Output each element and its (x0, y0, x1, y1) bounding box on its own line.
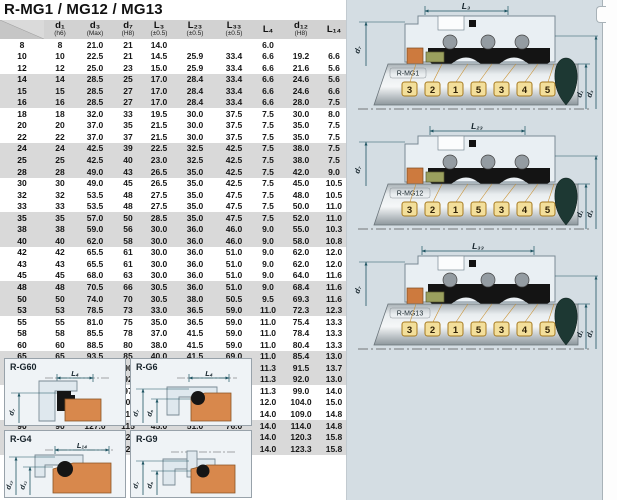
value-cell: 13.3 (320, 316, 348, 328)
value-cell: 35 (44, 212, 76, 224)
value-cell: 30.0 (142, 270, 176, 282)
value-cell: 50.5 (214, 293, 254, 305)
size-cell: 22 (0, 131, 44, 143)
diagram-r-mg1: L₃ R-MG1 3 2 1 5 3 4 5 d₇ (350, 2, 600, 116)
table-row: 151528.52717.028.433.46.624.66.6 (0, 85, 348, 97)
value-cell: 46.0 (214, 235, 254, 247)
value-cell: 59.0 (214, 305, 254, 317)
value-cell: 17.0 (142, 74, 176, 86)
column-header: L₄ (254, 20, 282, 39)
value-cell: 51.0 (214, 270, 254, 282)
value-cell: 14.8 (320, 420, 348, 432)
size-cell: 18 (0, 108, 44, 120)
value-cell: 11.3 (254, 385, 282, 397)
dim-label-d6: d₆ (146, 481, 155, 490)
value-cell: 26.5 (142, 178, 176, 190)
value-cell: 53.5 (76, 201, 114, 213)
table-row: 434365.56130.036.051.09.062.012.0 (0, 258, 348, 270)
column-header: d₁(h6) (44, 20, 76, 39)
value-cell: 28.5 (76, 74, 114, 86)
value-cell: 8 (44, 39, 76, 51)
value-cell: 68.4 (282, 281, 320, 293)
callout-3: 3 (407, 325, 412, 336)
model-label: R-MG1 (397, 71, 420, 78)
value-cell: 74.0 (76, 293, 114, 305)
table-row: 282849.04326.535.042.57.542.09.0 (0, 166, 348, 178)
size-cell: 50 (0, 293, 44, 305)
value-cell: 50 (44, 293, 76, 305)
model-label: R-MG12 (397, 191, 424, 198)
table-header: d₁(h6)d₃(Max)d₇(H8)L₃(±0.5)L₂₃(±0.5)L₃₃(… (0, 20, 348, 39)
value-cell: 25.9 (176, 62, 214, 74)
value-cell: 120.3 (282, 432, 320, 444)
table-row: 555581.07535.036.559.011.075.413.3 (0, 316, 348, 328)
value-cell: 35.0 (282, 120, 320, 132)
dim-label-l14: L₁₄ (77, 443, 87, 450)
value-cell: 33.4 (214, 74, 254, 86)
callout-boxes: 3 2 1 5 3 4 5 (402, 202, 555, 216)
value-cell: 47.5 (214, 212, 254, 224)
value-cell: 69.3 (282, 293, 320, 305)
value-cell: 58 (114, 235, 142, 247)
value-cell: 59.0 (214, 328, 254, 340)
value-cell: 30.5 (142, 281, 176, 293)
value-cell: 25 (44, 154, 76, 166)
size-cell: 42 (0, 247, 44, 259)
value-cell: 37.0 (142, 328, 176, 340)
value-cell: 14.0 (254, 409, 282, 421)
value-cell: 25 (114, 74, 142, 86)
value-cell: 41.5 (176, 328, 214, 340)
value-cell: 14.0 (142, 39, 176, 51)
seat-ring (407, 168, 423, 184)
value-cell: 99.0 (282, 385, 320, 397)
value-cell: 42.5 (214, 154, 254, 166)
value-cell: 42.5 (214, 166, 254, 178)
value-cell: 36.0 (176, 224, 214, 236)
value-cell: 35 (114, 120, 142, 132)
value-cell: 28.4 (176, 97, 214, 109)
detail-drawing-g9: d₇ d₆ (131, 443, 251, 497)
table-row: 323253.54827.535.047.57.548.010.5 (0, 189, 348, 201)
value-cell: 88.5 (76, 339, 114, 351)
value-cell: 38.0 (142, 339, 176, 351)
o-ring (57, 461, 73, 477)
dim-label-d7: d₇ (352, 165, 363, 175)
dim-label-d3: d₃ (584, 329, 595, 339)
value-cell: 13.7 (320, 362, 348, 374)
value-cell: 30.0 (142, 247, 176, 259)
value-cell: 22.5 (76, 51, 114, 63)
value-cell: 15.8 (320, 443, 348, 455)
value-cell: 7.5 (254, 166, 282, 178)
value-cell: 51.0 (214, 247, 254, 259)
value-cell: 30.0 (142, 235, 176, 247)
table-row: 101022.52114.525.933.46.619.26.6 (0, 51, 348, 63)
value-cell: 65.5 (76, 258, 114, 270)
dim-label-l3: L₃ (462, 2, 471, 11)
value-cell: 92.0 (282, 374, 320, 386)
value-cell: 56 (114, 224, 142, 236)
callout-5b: 5 (545, 205, 551, 216)
table-row: 252542.54023.032.542.57.538.07.5 (0, 154, 348, 166)
value-cell: 21 (114, 39, 142, 51)
size-cell: 60 (0, 339, 44, 351)
value-cell: 10.5 (320, 189, 348, 201)
table-row: 121225.02315.025.933.46.621.65.6 (0, 62, 348, 74)
spring (481, 273, 495, 287)
table-row: 404062.05830.036.046.09.058.010.8 (0, 235, 348, 247)
table-row: 606088.58038.041.559.011.080.413.3 (0, 339, 348, 351)
callout-5: 5 (476, 85, 482, 96)
value-cell: 14 (44, 74, 76, 86)
value-cell: 33.4 (214, 97, 254, 109)
value-cell: 85.5 (76, 328, 114, 340)
value-cell: 37.5 (214, 108, 254, 120)
table-row: 303049.04526.535.042.57.545.010.5 (0, 178, 348, 190)
value-cell (214, 39, 254, 51)
value-cell: 59.0 (214, 316, 254, 328)
value-cell: 41.5 (176, 339, 214, 351)
panel-r-g4: R-G4 L₁₄ d₁₂ d₁₁ (4, 430, 126, 498)
drive-pin (469, 20, 476, 27)
diagram-panel: L₃ R-MG1 3 2 1 5 3 4 5 d₇ (346, 0, 603, 500)
dim-label-d3: d₃ (584, 89, 595, 99)
value-cell: 11.0 (254, 328, 282, 340)
seat-ring (407, 288, 423, 304)
value-cell: 53.5 (76, 189, 114, 201)
size-cell: 40 (0, 235, 44, 247)
value-cell: 9.0 (254, 224, 282, 236)
value-cell: 48 (44, 281, 76, 293)
value-cell: 30.0 (176, 120, 214, 132)
value-cell: 12 (44, 62, 76, 74)
value-cell: 70 (114, 293, 142, 305)
value-cell: 25.9 (176, 51, 214, 63)
value-cell: 37.5 (214, 131, 254, 143)
value-cell: 45 (114, 178, 142, 190)
value-cell: 91.5 (282, 362, 320, 374)
table-row: 242442.53922.532.542.57.538.07.5 (0, 143, 348, 155)
value-cell: 49.0 (76, 166, 114, 178)
value-cell: 72.3 (282, 305, 320, 317)
value-cell: 33.4 (214, 85, 254, 97)
dim-label-d7: d₇ (352, 45, 363, 55)
value-cell: 11.0 (254, 305, 282, 317)
value-cell: 7.5 (254, 212, 282, 224)
table-row: 353557.05028.535.047.57.552.011.0 (0, 212, 348, 224)
value-cell: 48 (114, 189, 142, 201)
callout-boxes: 3 2 1 5 3 4 5 (402, 82, 555, 96)
value-cell: 46.0 (214, 224, 254, 236)
value-cell: 37.5 (214, 120, 254, 132)
value-cell: 22.5 (142, 143, 176, 155)
dim-label-d12: d₁₂ (5, 479, 15, 490)
value-cell: 27.5 (142, 189, 176, 201)
value-cell: 7.5 (254, 143, 282, 155)
value-cell (176, 39, 214, 51)
value-cell: 78.5 (76, 305, 114, 317)
table-row: 141428.52517.028.433.46.624.65.6 (0, 74, 348, 86)
value-cell: 30 (44, 178, 76, 190)
value-cell: 11.3 (254, 374, 282, 386)
dim-label-l23: L₂₃ (471, 122, 483, 131)
size-cell: 33 (0, 201, 44, 213)
elastomer-bellows (428, 284, 550, 307)
value-cell: 61 (114, 258, 142, 270)
value-cell: 42.5 (214, 178, 254, 190)
housing-notch (438, 136, 464, 150)
dim-label-l4: L₄ (71, 371, 79, 378)
value-cell: 45 (44, 270, 76, 282)
detail-drawing-g60: L₄ d₇ (5, 371, 125, 425)
value-cell: 21.6 (282, 62, 320, 74)
value-cell: 109.0 (282, 409, 320, 421)
value-cell: 42 (44, 247, 76, 259)
callout-4: 4 (522, 205, 528, 216)
value-cell: 30.5 (142, 293, 176, 305)
value-cell: 42.5 (214, 143, 254, 155)
value-cell: 43 (44, 258, 76, 270)
value-cell: 81.0 (76, 316, 114, 328)
value-cell: 36.5 (176, 316, 214, 328)
value-cell: 22 (44, 131, 76, 143)
value-cell: 28.5 (76, 97, 114, 109)
value-cell (282, 39, 320, 51)
value-cell: 49.0 (76, 178, 114, 190)
callout-5b: 5 (545, 85, 551, 96)
value-cell: 6.6 (254, 97, 282, 109)
value-cell: 35.0 (176, 166, 214, 178)
size-cell: 45 (0, 270, 44, 282)
value-cell: 73 (114, 305, 142, 317)
spring (515, 155, 529, 169)
housing-notch (438, 256, 464, 270)
value-cell: 37.0 (76, 131, 114, 143)
value-cell: 33.0 (142, 305, 176, 317)
face-ring (426, 52, 444, 62)
callout-4: 4 (522, 325, 528, 336)
dim-label-l4: L₄ (205, 371, 213, 378)
value-cell: 51.0 (214, 281, 254, 293)
value-cell: 50.0 (282, 201, 320, 213)
size-cell: 25 (0, 154, 44, 166)
value-cell: 11.0 (254, 351, 282, 363)
value-cell: 12.0 (254, 397, 282, 409)
table-row: 383859.05630.036.046.09.055.010.3 (0, 224, 348, 236)
dim-label-l33: L₃₃ (472, 242, 484, 251)
value-cell: 7.5 (254, 108, 282, 120)
size-cell: 20 (0, 120, 44, 132)
value-cell: 26.5 (142, 166, 176, 178)
value-cell: 36.0 (176, 258, 214, 270)
value-cell: 5.6 (320, 74, 348, 86)
value-cell: 55 (44, 316, 76, 328)
value-cell: 9.5 (254, 293, 282, 305)
value-cell: 80 (114, 339, 142, 351)
value-cell: 32.5 (176, 154, 214, 166)
value-cell: 10 (44, 51, 76, 63)
value-cell: 28.5 (142, 212, 176, 224)
column-header: L₁₄ (320, 20, 348, 39)
callout-1: 1 (453, 325, 459, 336)
o-ring (197, 465, 210, 478)
value-cell: 37.0 (76, 120, 114, 132)
spring (515, 35, 529, 49)
column-header: L₃(±0.5) (142, 20, 176, 39)
table-row: 202037.03521.530.037.57.535.07.5 (0, 120, 348, 132)
callout-2: 2 (430, 85, 435, 96)
value-cell: 35.0 (176, 189, 214, 201)
callout-3b: 3 (499, 205, 504, 216)
value-cell: 32.0 (76, 108, 114, 120)
spring (443, 35, 457, 49)
value-cell: 42.5 (76, 143, 114, 155)
value-cell: 35.0 (176, 212, 214, 224)
value-cell: 75 (114, 316, 142, 328)
dim-label-d1: d₁ (574, 209, 585, 219)
diagram-r-mg12: L₂₃ R-MG12 3 2 1 5 3 4 5 d₇ (350, 122, 600, 236)
value-cell: 38.0 (282, 143, 320, 155)
callout-5: 5 (476, 325, 482, 336)
callout-3b: 3 (499, 325, 504, 336)
value-cell: 80.4 (282, 339, 320, 351)
size-cell: 38 (0, 224, 44, 236)
table-row: 161628.52717.028.433.46.628.07.5 (0, 97, 348, 109)
value-cell: 78 (114, 328, 142, 340)
value-cell: 51.0 (214, 258, 254, 270)
dim-label-d11: d₁₁ (19, 479, 29, 490)
value-cell: 35.0 (176, 178, 214, 190)
value-cell: 27 (114, 85, 142, 97)
value-cell: 15 (44, 85, 76, 97)
callout-3b: 3 (499, 85, 504, 96)
callout-5: 5 (476, 205, 482, 216)
value-cell: 27.5 (142, 201, 176, 213)
value-cell (320, 39, 348, 51)
value-cell: 6.6 (254, 62, 282, 74)
value-cell: 42.0 (282, 166, 320, 178)
value-cell: 7.5 (254, 131, 282, 143)
value-cell: 35.0 (176, 201, 214, 213)
value-cell: 63 (114, 270, 142, 282)
value-cell: 35.0 (142, 316, 176, 328)
value-cell: 40 (114, 154, 142, 166)
size-cell: 8 (0, 39, 44, 51)
value-cell: 28.5 (76, 85, 114, 97)
value-cell: 12.0 (320, 247, 348, 259)
value-cell: 14.0 (254, 432, 282, 444)
column-header: L₃₃(±0.5) (214, 20, 254, 39)
callout-1: 1 (453, 85, 459, 96)
value-cell: 15.8 (320, 432, 348, 444)
drive-pin (469, 260, 476, 267)
value-cell: 14.5 (142, 51, 176, 63)
value-cell: 7.5 (320, 154, 348, 166)
callout-2: 2 (430, 205, 435, 216)
value-cell: 38.0 (176, 293, 214, 305)
size-cell: 30 (0, 178, 44, 190)
value-cell: 15.0 (142, 62, 176, 74)
size-cell: 48 (0, 281, 44, 293)
value-cell: 17.0 (142, 97, 176, 109)
size-cell: 10 (0, 51, 44, 63)
value-cell: 123.3 (282, 443, 320, 455)
value-cell: 12.3 (320, 305, 348, 317)
value-cell: 39 (114, 143, 142, 155)
value-cell: 5.6 (320, 62, 348, 74)
size-cell: 53 (0, 305, 44, 317)
table-row: 484870.56630.536.051.09.068.411.6 (0, 281, 348, 293)
seat-ring (65, 399, 101, 421)
value-cell: 9.0 (254, 235, 282, 247)
value-cell: 59.0 (214, 339, 254, 351)
value-cell: 28.4 (176, 74, 214, 86)
value-cell: 28 (44, 166, 76, 178)
value-cell: 14.0 (254, 420, 282, 432)
value-cell: 30.0 (142, 258, 176, 270)
value-cell: 19.5 (142, 108, 176, 120)
value-cell: 21.5 (142, 120, 176, 132)
value-cell: 30.0 (176, 108, 214, 120)
page-title: R-MG1 / MG12 / MG13 (4, 1, 163, 18)
table-row: 222237.03721.530.037.57.535.07.5 (0, 131, 348, 143)
value-cell: 32 (44, 189, 76, 201)
o-ring (191, 391, 205, 405)
value-cell: 8.0 (320, 108, 348, 120)
value-cell: 10.3 (320, 224, 348, 236)
value-cell: 75.4 (282, 316, 320, 328)
value-cell: 12.0 (320, 258, 348, 270)
page-edge-strip (602, 0, 617, 500)
value-cell: 27 (114, 97, 142, 109)
value-cell: 104.0 (282, 397, 320, 409)
value-cell: 7.5 (254, 154, 282, 166)
corner-header-cell (0, 20, 44, 39)
value-cell: 10.5 (320, 178, 348, 190)
dim-label-d7: d₇ (132, 481, 141, 490)
value-cell: 7.5 (320, 143, 348, 155)
size-cell: 35 (0, 212, 44, 224)
value-cell: 11.6 (320, 281, 348, 293)
column-header: L₂₃(±0.5) (176, 20, 214, 39)
value-cell: 11.0 (320, 201, 348, 213)
value-cell: 33 (44, 201, 76, 213)
value-cell: 36.0 (176, 281, 214, 293)
value-cell: 24.6 (282, 74, 320, 86)
value-cell: 9.0 (254, 247, 282, 259)
value-cell: 9.0 (320, 166, 348, 178)
value-cell: 11.0 (254, 339, 282, 351)
value-cell: 66 (114, 281, 142, 293)
value-cell: 62.0 (76, 235, 114, 247)
value-cell: 7.5 (254, 178, 282, 190)
dim-label-d7: d₇ (8, 408, 17, 417)
size-cell: 16 (0, 97, 44, 109)
value-cell: 18 (44, 108, 76, 120)
callout-5b: 5 (545, 325, 551, 336)
callout-3: 3 (407, 205, 412, 216)
size-cell: 58 (0, 328, 44, 340)
value-cell: 13.3 (320, 328, 348, 340)
value-cell: 6.6 (320, 85, 348, 97)
size-cell: 24 (0, 143, 44, 155)
value-cell: 21.5 (142, 131, 176, 143)
face-ring (426, 172, 444, 182)
size-cell: 15 (0, 85, 44, 97)
value-cell: 6.6 (254, 85, 282, 97)
value-cell: 48 (114, 201, 142, 213)
